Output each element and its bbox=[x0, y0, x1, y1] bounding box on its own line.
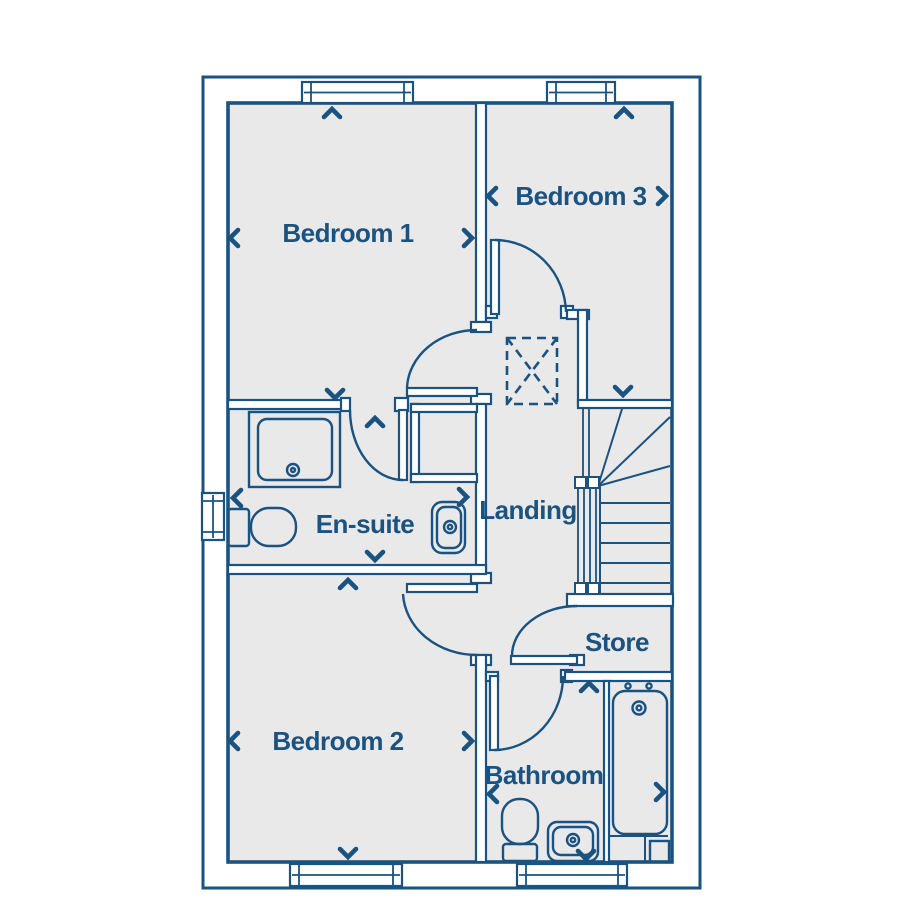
floor-plan-page: Bedroom 1 Bedroom 3 En-suite Landing Sto… bbox=[0, 0, 900, 900]
window-en-suite bbox=[202, 493, 224, 540]
window-bedroom-2 bbox=[290, 864, 402, 886]
window-bathroom bbox=[517, 864, 627, 886]
label-landing: Landing bbox=[479, 495, 577, 525]
label-store: Store bbox=[585, 627, 649, 657]
window-bedroom-3 bbox=[547, 82, 615, 103]
label-bedroom-3: Bedroom 3 bbox=[515, 181, 646, 211]
label-en-suite: En-suite bbox=[316, 509, 415, 539]
label-bathroom: Bathroom bbox=[485, 760, 604, 790]
window-bedroom-1 bbox=[302, 82, 413, 103]
floor-plan-drawing: Bedroom 1 Bedroom 3 En-suite Landing Sto… bbox=[0, 0, 900, 900]
label-bedroom-2: Bedroom 2 bbox=[272, 726, 403, 756]
label-bedroom-1: Bedroom 1 bbox=[282, 218, 413, 248]
